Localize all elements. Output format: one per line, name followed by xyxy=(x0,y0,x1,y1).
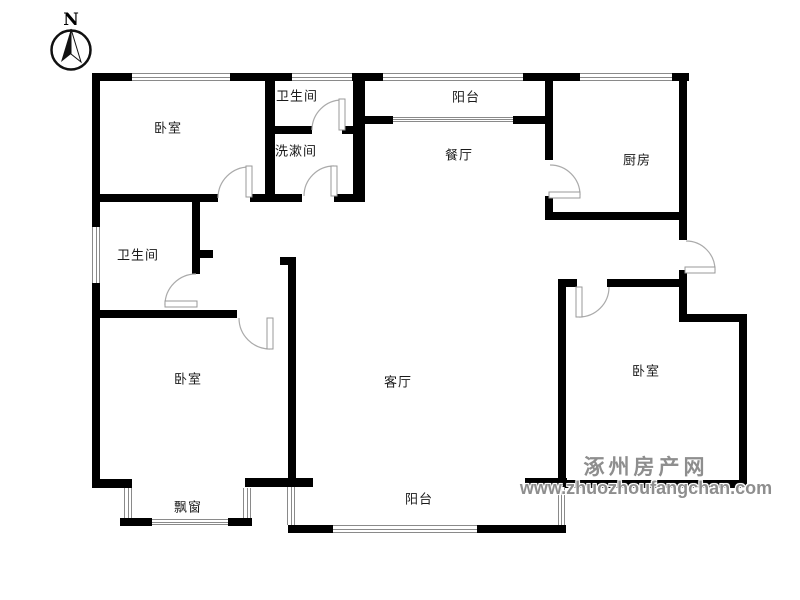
room-label-bay-window: 飘窗 xyxy=(174,497,202,516)
wall xyxy=(92,73,100,227)
wall xyxy=(245,478,313,487)
door-arc-bathroom-top xyxy=(312,100,342,130)
door-leaf-bedroom-top-left xyxy=(246,166,252,197)
door-arc-entry xyxy=(686,241,715,270)
wall xyxy=(679,270,687,322)
wall xyxy=(230,73,292,81)
room-label-living-room: 客厅 xyxy=(384,372,412,391)
window-kitchen xyxy=(580,73,672,81)
wall xyxy=(352,73,383,81)
bay-window-left xyxy=(124,488,132,518)
wall xyxy=(513,116,547,124)
window-balcony-top xyxy=(383,73,523,81)
watermark-site-name: 涿州房产网 xyxy=(518,456,774,479)
room-label-bedroom-bottom-left: 卧室 xyxy=(174,369,202,388)
window-balcony-front xyxy=(333,525,477,533)
room-label-bathroom-left: 卫生间 xyxy=(117,245,159,264)
room-label-washroom: 洗漱间 xyxy=(275,141,317,160)
door-arc-bedroom-right xyxy=(579,287,609,317)
watermark: 涿州房产网 www.zhuozhoufangchan.com xyxy=(518,456,774,499)
door-leaf-bedroom-bottom-left xyxy=(267,318,273,349)
wall xyxy=(607,279,687,287)
door-arc-kitchen xyxy=(550,165,580,195)
wall xyxy=(679,81,687,240)
room-label-bathroom-top: 卫生间 xyxy=(276,86,318,105)
wall xyxy=(265,126,312,134)
door-arc-bedroom-top-left xyxy=(218,167,249,198)
window-bathroom-left xyxy=(92,227,100,283)
wall xyxy=(365,116,393,124)
bay-window-right xyxy=(243,488,251,518)
watermark-site-url: www.zhuozhoufangchan.com xyxy=(518,479,774,499)
wall xyxy=(265,81,275,194)
wall xyxy=(558,279,577,287)
floor-plan: N 卧室 卫生间 洗漱间 阳台 餐厅 厨房 卫生间 卧室 客厅 卧室 飘窗 阳台… xyxy=(0,0,800,600)
wall xyxy=(92,479,132,488)
door-leaf-entry xyxy=(685,267,715,273)
wall xyxy=(288,525,333,533)
wall xyxy=(95,73,132,81)
door-arc-washroom xyxy=(304,166,334,196)
room-label-balcony-top: 阳台 xyxy=(452,87,480,106)
room-label-dining-room: 餐厅 xyxy=(445,145,473,164)
room-label-bedroom-top-left: 卧室 xyxy=(154,118,182,137)
wall xyxy=(92,310,237,318)
wall xyxy=(545,81,553,160)
slider-balcony-top xyxy=(393,117,513,122)
room-label-balcony-bottom: 阳台 xyxy=(405,489,433,508)
room-label-bedroom-right: 卧室 xyxy=(632,361,660,380)
door-leaf-washroom xyxy=(331,166,337,196)
wall xyxy=(687,314,747,322)
wall xyxy=(280,257,288,265)
wall xyxy=(477,525,566,533)
wall xyxy=(545,212,687,220)
wall xyxy=(523,73,580,81)
door-arc-bedroom-bottom-left xyxy=(239,318,270,349)
wall xyxy=(288,257,296,487)
wall xyxy=(228,518,252,526)
door-leaf-bedroom-right xyxy=(576,287,582,317)
compass-icon xyxy=(52,29,91,70)
bay-window-front xyxy=(152,519,228,525)
door-leaf-kitchen xyxy=(549,192,580,198)
door-arc-bathroom-left xyxy=(165,274,196,305)
room-label-kitchen: 厨房 xyxy=(623,150,651,169)
window-balcony-left xyxy=(287,487,295,525)
wall xyxy=(672,73,689,81)
door-leaf-bathroom-left xyxy=(165,301,197,307)
wall xyxy=(353,81,365,202)
wall xyxy=(250,194,302,202)
window-bedroom-top xyxy=(132,73,230,81)
compass-north-label: N xyxy=(63,10,79,30)
wall xyxy=(120,518,152,526)
wall xyxy=(200,250,213,258)
wall xyxy=(192,194,200,274)
window-bathroom-top xyxy=(292,73,352,81)
wall xyxy=(558,287,566,480)
